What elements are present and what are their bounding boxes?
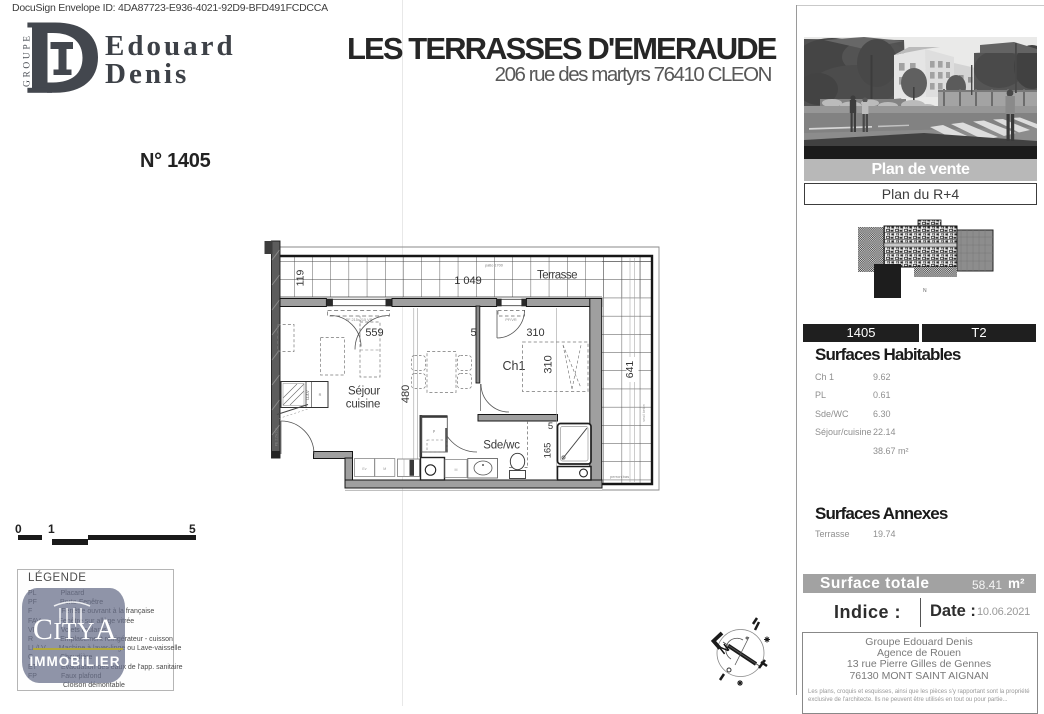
svg-text:N: N xyxy=(923,288,927,294)
svg-text:Terrasse: Terrasse xyxy=(537,270,577,282)
svg-text:LL/LV: LL/LV xyxy=(306,390,310,400)
svg-text:559: 559 xyxy=(365,327,383,339)
svg-text:PF 215x215 VR: PF 215x215 VR xyxy=(346,318,373,322)
svg-text:5: 5 xyxy=(548,421,553,432)
svg-text:M: M xyxy=(383,467,386,471)
svg-text:5: 5 xyxy=(470,327,476,339)
svg-text:PE 215x100: PE 215x100 xyxy=(275,428,279,447)
svg-text:480: 480 xyxy=(400,385,412,403)
svg-text:Séjour: Séjour xyxy=(348,386,380,398)
svg-text:cuisine: cuisine xyxy=(346,399,380,411)
svg-text:R: R xyxy=(319,393,322,397)
svg-text:Sde/wc: Sde/wc xyxy=(483,440,520,452)
svg-text:119: 119 xyxy=(295,269,307,286)
svg-text:310: 310 xyxy=(526,327,544,339)
svg-text:patio 1700: patio 1700 xyxy=(485,264,503,268)
svg-text:1 049: 1 049 xyxy=(454,275,482,287)
svg-text:M: M xyxy=(455,468,458,472)
svg-text:Ev: Ev xyxy=(362,467,366,471)
svg-text:Ch1: Ch1 xyxy=(503,359,526,373)
svg-text:641: 641 xyxy=(624,361,636,379)
svg-text:310: 310 xyxy=(543,355,555,373)
svg-text:perron bas: perron bas xyxy=(610,474,629,479)
svg-text:165: 165 xyxy=(543,443,554,459)
svg-text:seuil beton: seuil beton xyxy=(642,404,646,421)
svg-text:PF/VR: PF/VR xyxy=(505,318,516,322)
